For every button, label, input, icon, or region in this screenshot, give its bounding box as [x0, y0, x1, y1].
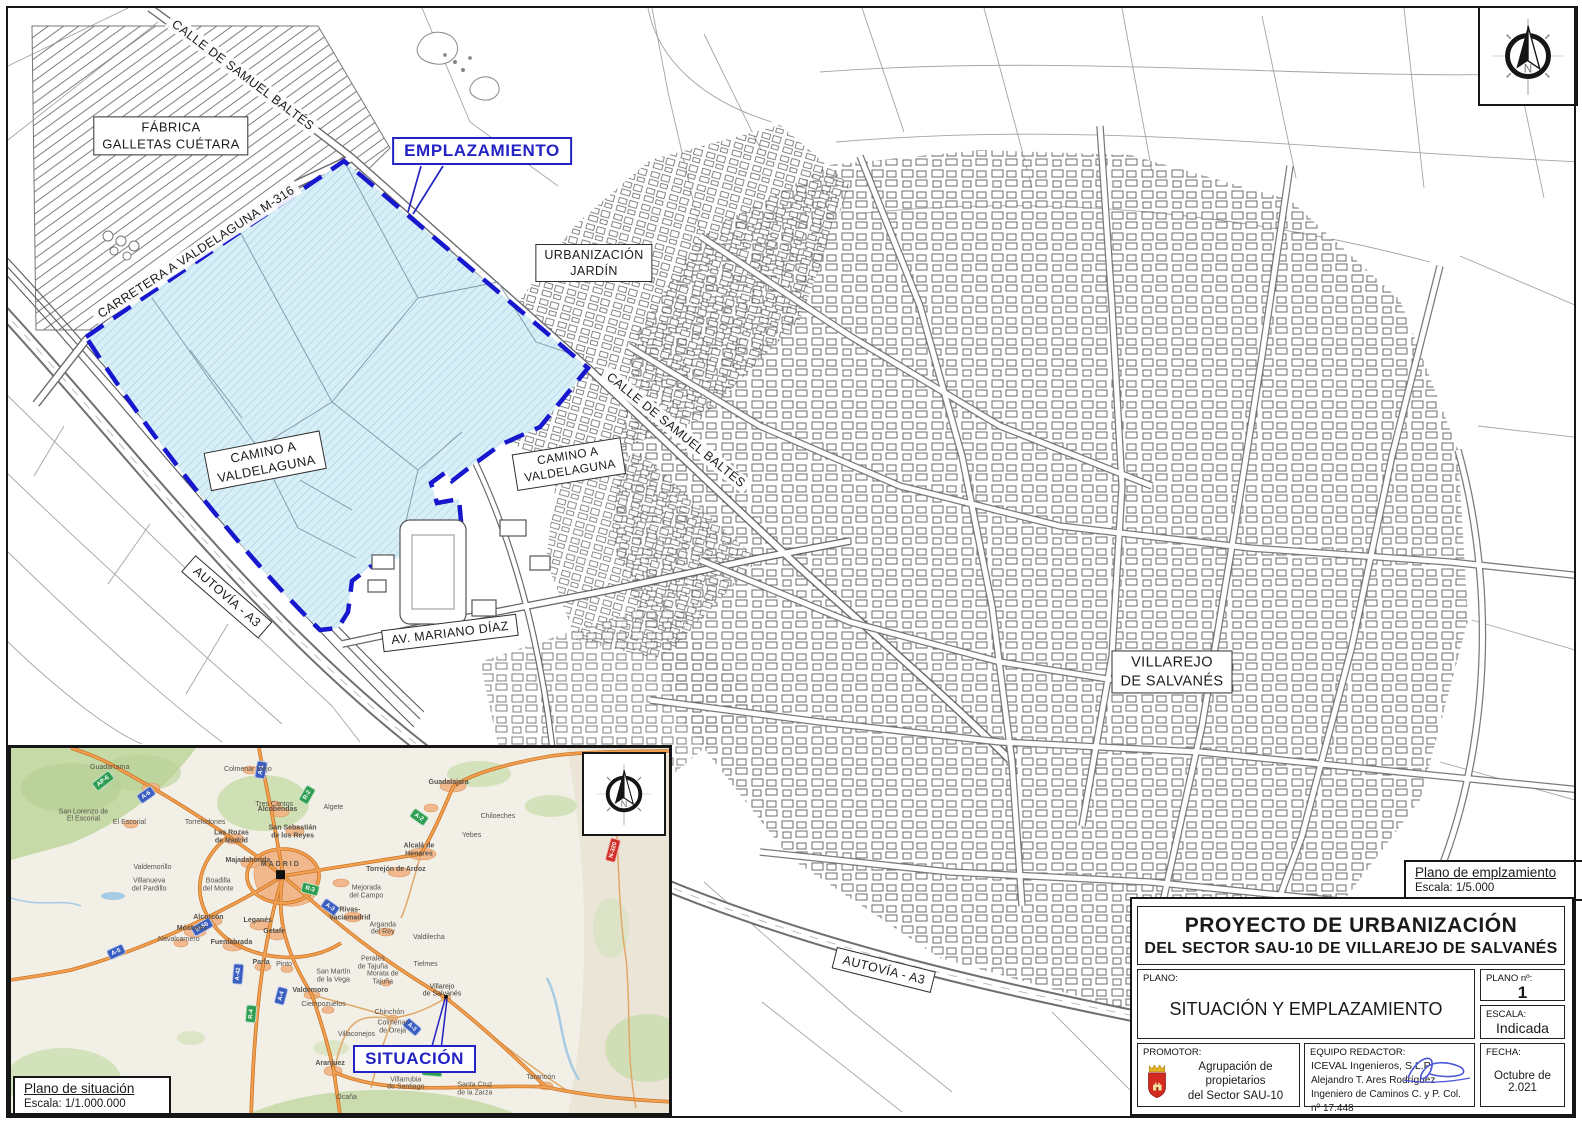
situacion-label: SITUACIÓN: [353, 1045, 476, 1073]
inset-town-valdilecha: Valdilecha: [413, 934, 445, 942]
inset-town-ciempozuelos: Ciempozuelos: [301, 1001, 345, 1009]
inset-town-rivas-vaciamadrid: Rivas-Vaciamadrid: [329, 906, 370, 921]
inset-town-ocaña: Ocaña: [336, 1095, 357, 1103]
map-label-autovia-a3-bottom: AUTOVÍA - A3: [832, 947, 937, 993]
inset-town-el-escorial: El Escorial: [113, 819, 146, 827]
map-label-urbanizacion-jardin: URBANIZACIÓNJARDÍN: [535, 244, 652, 282]
project-title-line2: DEL SECTOR SAU-10 DE VILLAREJO DE SALVAN…: [1144, 940, 1557, 958]
inset-town-parla: Parla: [252, 960, 269, 968]
map-label-calle-samuel-baltes-mid: CALLE DE SAMUEL BALTÉS: [599, 366, 752, 494]
drawing-sheet: N: [0, 0, 1582, 1124]
title-block: PROYECTO DE URBANIZACIÓN DEL SECTOR SAU-…: [1130, 897, 1574, 1116]
title-block-promotor-cell: PROMOTOR: Agrupación de propietarios del…: [1137, 1043, 1300, 1107]
inset-town-yebes: Yebes: [462, 832, 481, 840]
inset-town-san-martín-de-la-vega: San Martínde la Vega: [316, 968, 350, 983]
map-label-carretera-valdelaguna-m316: CARRETERA A VALDELAGUNA M-316: [90, 179, 301, 324]
inset-town-san-lorenzo-de-el-escorial: San Lorenzo deEl Escorial: [59, 808, 108, 823]
inset-town-pinto: Pinto: [276, 961, 292, 969]
escala-value: Indicada: [1481, 1020, 1564, 1036]
map-label-autovia-a3-left: AUTOVÍA - A3: [181, 555, 273, 639]
escala-tag: ESCALA:: [1486, 1009, 1526, 1020]
inset-town-alcalá-de-henares: Alcalá deHenares: [404, 843, 435, 858]
inset-town-algete: Algete: [323, 804, 343, 812]
inset-town-morata-de-tajuña: Morata deTajuña: [367, 970, 399, 985]
inset-town-villarejo-de-salvanés: Villarejode Salvanés: [423, 983, 462, 998]
inset-town-fuenlabrada: Fuenlabrada: [211, 939, 253, 947]
inset-town-móstoles: Móstoles: [177, 925, 207, 933]
inset-town-san-sebastián-de-los-reyes: San Sebastiánde los Reyes: [269, 824, 317, 839]
title-block-project-title: PROYECTO DE URBANIZACIÓN DEL SECTOR SAU-…: [1137, 906, 1565, 965]
coat-of-arms-icon: [1144, 1062, 1170, 1102]
promotor-line1: Agrupación de propietarios: [1176, 1060, 1295, 1089]
scale-title: Plano de situación: [24, 1081, 160, 1096]
inset-town-tarancón: Tarancón: [526, 1074, 555, 1082]
inset-town-torrejón-de-ardoz: Torrejón de Ardoz: [366, 866, 426, 874]
title-block-escala-cell: ESCALA: Indicada: [1480, 1005, 1565, 1039]
inset-town-santa-cruz-de-la-zarza: Santa Cruzde la Zarza: [457, 1082, 492, 1097]
north-arrow-box-main: [1478, 6, 1578, 106]
inset-town-tres-cantos: Tres Cantos: [255, 801, 293, 809]
inset-town-valdemoro: Valdemoro: [292, 987, 328, 995]
inset-town-colmenar-viejo: Colmenar Viejo: [224, 766, 272, 774]
inset-town-villanueva-del-pardillo: Villanuevadel Pardillo: [132, 877, 167, 892]
inset-town-perales-de-tajuña: Peralesde Tajuña: [358, 956, 388, 971]
title-block-equipo-cell: EQUIPO REDACTOR: ICEVAL Ingenieros, S.L.…: [1304, 1043, 1475, 1107]
north-arrow-icon: [1489, 15, 1567, 97]
scale-box-emplazamiento: Plano de emplzamiento Escala: 1/5.000: [1404, 860, 1582, 901]
inset-town-labels: MADRIDGuadalajaraAlcobendasSan Sebastián…: [11, 748, 669, 1113]
inset-situation-map: AP-6A-6A-1R-2A-2N-320M-50A-5A-42A-4R-4R-…: [8, 745, 672, 1116]
map-label-fabrica-galletas-cuetara: FÁBRICAGALLETAS CUÉTARA: [93, 116, 248, 155]
title-block-fecha-cell: FECHA: Octubre de 2.021: [1480, 1043, 1565, 1107]
fecha-tag: FECHA:: [1486, 1047, 1521, 1058]
plano-value: SITUACIÓN Y EMPLAZAMIENTO: [1169, 999, 1442, 1020]
inset-town-las-rozas-de-madrid: Las Rozasde Madrid: [214, 830, 249, 845]
inset-town-aranjuez: Aranjuez: [315, 1060, 345, 1068]
inset-town-guadarrama: Guadarrama: [90, 764, 129, 772]
inset-town-majadahonda: Majadahonda: [226, 857, 271, 865]
plano-number-tag: PLANO nº:: [1486, 973, 1532, 984]
map-label-camino-a-valdelaguna-left: CAMINO AVALDELAGUNA: [204, 431, 327, 492]
inset-town-chiloeches: Chiloeches: [481, 814, 516, 822]
promotor-value: Agrupación de propietarios del Sector SA…: [1176, 1060, 1295, 1103]
plano-number-value: 1: [1481, 983, 1564, 1003]
map-label-camino-a-valdelaguna-right: CAMINO AVALDELAGUNA: [512, 437, 627, 491]
title-block-plano-cell: PLANO: SITUACIÓN Y EMPLAZAMIENTO: [1137, 969, 1475, 1039]
inset-town-villarrubia-de-santiago: Villarrubiade Santiago: [387, 1076, 424, 1091]
plano-tag: PLANO:: [1143, 973, 1178, 984]
map-label-av-mariano-diaz: AV. MARIANO DÍAZ: [381, 614, 519, 652]
map-label-villarejo-de-salvanes: VILLAREJODE SALVANÉS: [1112, 650, 1233, 693]
north-arrow-icon: [593, 761, 655, 827]
inset-town-valdemorillo: Valdemorillo: [133, 865, 171, 873]
scale-box-situacion: Plano de situación Escala: 1/1.000.000: [13, 1076, 171, 1116]
north-arrow-box-inset: [582, 752, 666, 836]
inset-town-colmenar-de-oreja: Colmenarde Oreja: [377, 1020, 407, 1035]
equipo-tag: EQUIPO REDACTOR:: [1310, 1047, 1405, 1058]
inset-town-villaconejos: Villaconejos: [338, 1031, 375, 1039]
scale-title: Plano de emplzamiento: [1415, 865, 1577, 880]
inset-town-leganés: Leganés: [244, 918, 272, 926]
inset-town-getafe: Getafe: [263, 928, 285, 936]
inset-town-alcorcón: Alcorcón: [193, 914, 223, 922]
project-title-line1: PROYECTO DE URBANIZACIÓN: [1185, 914, 1517, 938]
promotor-tag: PROMOTOR:: [1143, 1047, 1201, 1058]
inset-town-boadilla-del-monte: Boadilladel Monte: [203, 877, 234, 892]
inset-town-mejorada-del-campo: Mejoradadel Campo: [349, 884, 383, 899]
promotor-line2: del Sector SAU-10: [1176, 1089, 1295, 1103]
signature-icon: [1400, 1050, 1474, 1092]
inset-town-navalcarnero: Navalcarnero: [158, 936, 200, 944]
scale-value: Escala: 1/1.000.000: [24, 1098, 160, 1110]
inset-town-torrelodones: Torrelodones: [185, 819, 225, 827]
inset-town-tielmes: Tielmes: [413, 961, 437, 969]
inset-town-guadalajara: Guadalajara: [429, 779, 469, 787]
inset-town-arganda-del-rey: Argandadel Rey: [370, 921, 396, 936]
emplazamiento-label: EMPLAZAMIENTO: [392, 137, 572, 165]
title-block-plano-number-cell: PLANO nº: 1: [1480, 969, 1565, 1001]
scale-value: Escala: 1/5.000: [1415, 882, 1577, 894]
fecha-value: Octubre de 2.021: [1481, 1070, 1564, 1094]
inset-town-chinchón: Chinchón: [375, 1009, 405, 1017]
